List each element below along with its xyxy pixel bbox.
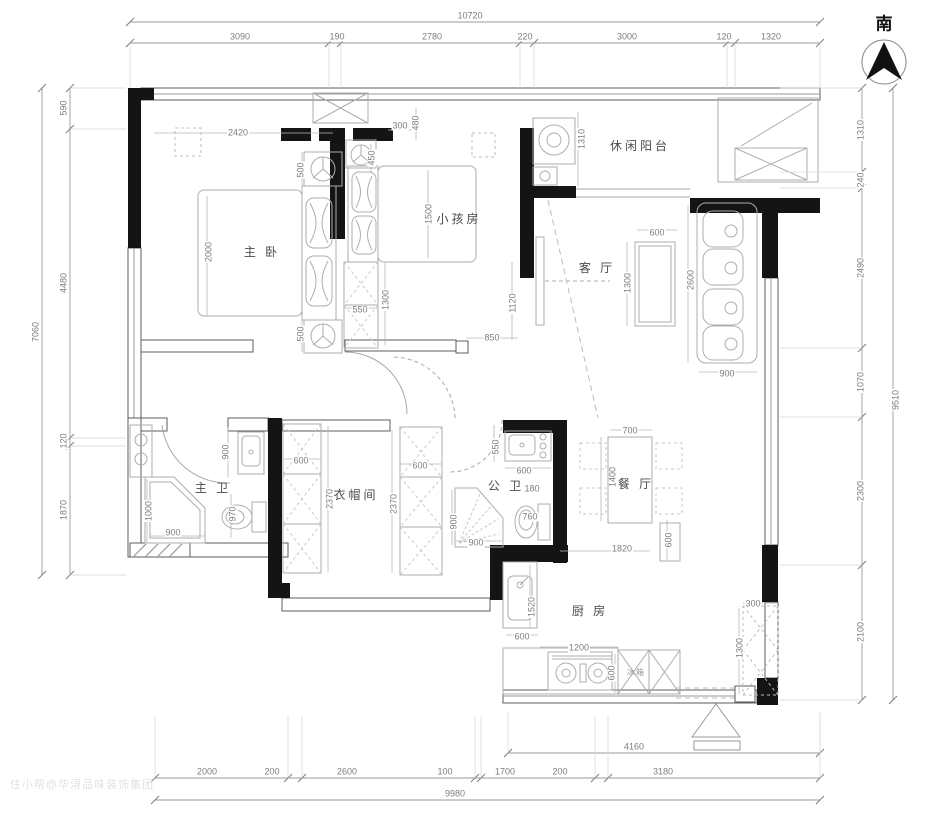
dimension-label: 900 [164,529,181,538]
dimension-label: 900 [450,513,459,530]
ruler-dimension-label: 7060 [32,321,41,343]
ruler-dimension-label: 1310 [857,119,866,141]
dimension-label: 1120 [509,292,518,313]
ruler-dimension-label: 2300 [857,480,866,502]
dimension-label: 850 [483,334,500,343]
ruler-dimension-label: 200 [263,768,280,777]
dimension-label: 600 [665,531,674,548]
dimension-label: 480 [412,114,421,131]
tv-panel [536,237,610,325]
compass-icon [862,40,906,84]
ruler-dimension-label: 4160 [623,743,645,752]
dimension-label: 1310 [578,128,587,150]
dimension-label: 600 [608,664,617,681]
ruler-dimension-label: 120 [60,432,69,449]
room-label: 休闲阳台 [609,140,671,152]
kids-bed [344,140,476,348]
kitchen-fixtures [503,562,618,694]
dimension-label: 1300 [382,289,391,311]
ruler-dimension-label: 120 [715,33,732,42]
dimension-label: 300 [744,600,761,609]
dimension-label: 2370 [390,493,399,515]
ruler-dimension-label: 3000 [616,33,638,42]
dimension-label: 1820 [611,545,633,554]
room-label: 衣帽间 [332,489,379,501]
ruler-dimension-label: 100 [436,768,453,777]
dimension-label: 2600 [687,269,696,291]
compass-label: 南 [876,10,893,35]
exterior-walls [128,88,820,703]
ruler-dimension-label: 200 [551,768,568,777]
ruler-dimension-label: 590 [60,99,69,116]
dimension-label: 1500 [425,203,434,225]
room-label: 小孩房 [435,213,482,225]
dimension-label: 1300 [736,637,745,659]
dimension-label: 1200 [568,644,590,653]
dimension-label: 1000 [145,500,154,522]
dimension-label: 500 [297,161,306,178]
dimension-label: 900 [718,370,735,379]
dimension-label: 180 [523,485,540,494]
room-label: 公 卫 [487,480,525,492]
dimension-label: 970 [229,505,238,522]
ruler-dimension-label: 1870 [60,499,69,521]
coffee-table [635,242,675,326]
ruler-dimension-label: 3180 [652,768,674,777]
ruler-dimension-label: 190 [328,33,345,42]
ruler-dimension-label: 220 [516,33,533,42]
dimension-label: 700 [621,427,638,436]
ruler-dimension-label: 1700 [494,768,516,777]
room-label: 主 卧 [243,246,281,258]
wardrobe-right [400,427,442,575]
floor-plan-drawing [0,0,926,813]
ruler-dimension-label: 2100 [857,621,866,643]
washing-machine [533,118,575,185]
dimension-label: 600 [515,467,532,476]
ruler-dimension-label: 1070 [857,371,866,393]
dimension-label: 600 [411,462,428,471]
sofa [697,203,757,363]
dimension-label: 1300 [624,272,633,294]
room-label: 主 卫 [194,482,232,494]
dimension-label: 450 [368,149,377,166]
dimension-label: 760 [521,513,538,522]
dimension-label: 2000 [205,241,214,263]
ruler-dimension-label: 10720 [456,12,483,21]
ruler-dimension-label: 2490 [857,257,866,279]
ruler-dimension-label: 9980 [444,790,466,799]
ruler-dimension-label: 240 [857,171,866,188]
ruler-dimension-label: 1320 [760,33,782,42]
dimension-label: 550 [492,438,501,455]
ruler-dimension-label: 9510 [892,389,901,411]
hatched-wall [130,543,190,557]
watermark: 住小帮@华浔品味装饰集团 [10,776,154,792]
dimension-label: 1520 [528,596,537,618]
floor-plan-canvas: 南 住小帮@华浔品味装饰集团 1072030901902780220300012… [0,0,926,813]
ruler-dimension-label: 2000 [196,768,218,777]
solid-walls [128,88,820,705]
appliance-label: 冰箱 [626,669,646,677]
inner-dimension-lines [147,108,778,694]
dimension-label: 300 [391,122,408,131]
ruler-dimension-label: 2600 [336,768,358,777]
ruler-dimension-label: 4480 [60,272,69,294]
ruler-dimension-label: 3090 [229,33,251,42]
dimension-label: 900 [222,443,231,460]
dimension-label: 500 [297,325,306,342]
wardrobe-left [283,424,321,573]
dimension-label: 2420 [227,129,249,138]
entry-arrow-icon [692,704,740,750]
dimension-label: 600 [648,229,665,238]
ruler-dimension-label: 2780 [421,33,443,42]
room-label: 餐 厅 [617,478,655,490]
dimension-label: 600 [513,633,530,642]
dimension-label: 900 [467,539,484,548]
room-label: 厨 房 [571,605,609,617]
room-label: 客 厅 [578,262,616,274]
dimension-label: 600 [292,457,309,466]
doors [162,189,755,702]
ac-unit-platform [718,98,818,182]
dimension-label: 550 [351,306,368,315]
flue-shaft [313,93,368,123]
